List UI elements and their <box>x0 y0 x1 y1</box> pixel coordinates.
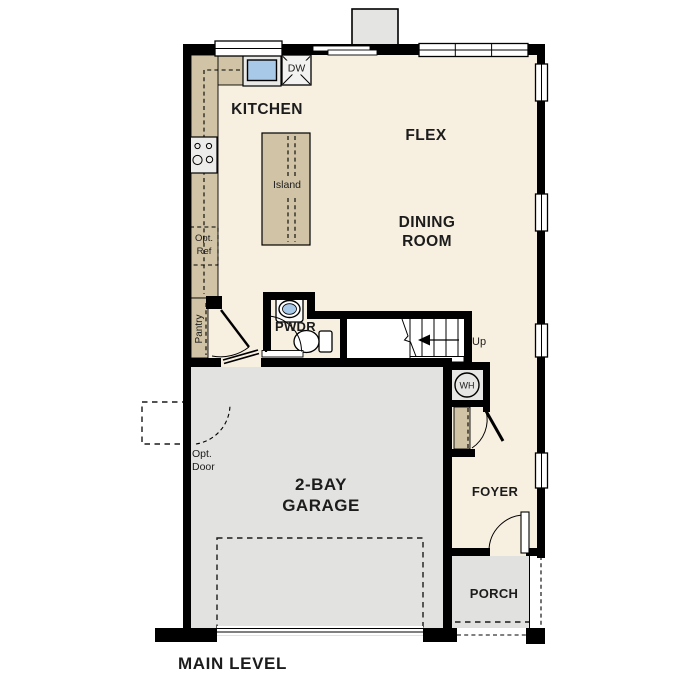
vanity-sink-bowl <box>283 304 297 315</box>
porch-label: PORCH <box>470 586 518 601</box>
closet-shelf <box>454 407 470 449</box>
wall-porch-post <box>526 628 545 644</box>
porch-edge-strip <box>529 556 537 628</box>
water-heater-label: WH <box>460 381 475 391</box>
wall-foyer-bottom-left <box>443 548 490 556</box>
wall-closet-bottom <box>443 449 475 457</box>
wall-garage-bottom-left <box>155 628 217 642</box>
up-label: Up <box>472 336 486 348</box>
wall-pantry-stub <box>206 296 222 309</box>
island-label: Island <box>273 179 301 191</box>
pwdr-label: PWDR <box>275 319 316 334</box>
front-door-leaf <box>521 512 529 553</box>
opt-ref-label-line1: Opt. <box>195 233 213 244</box>
pwdr-door-sill <box>262 351 303 358</box>
flex-label: FLEX <box>405 127 446 144</box>
dining-room-label-line1: DINING <box>399 214 456 231</box>
wall-pwdr-stair <box>340 319 347 362</box>
pantry-label: Pantry <box>194 315 205 344</box>
wall-wh-right <box>483 362 490 412</box>
kitchen-counter-left <box>191 55 218 298</box>
dishwasher-label: DW <box>288 63 306 75</box>
chimney-bumpout <box>352 9 398 48</box>
dining-room-label-line2: ROOM <box>402 233 452 250</box>
garage-door-opening <box>217 626 423 635</box>
sink-icon <box>248 60 277 81</box>
foyer-label: FOYER <box>472 484 519 499</box>
kitchen-label: KITCHEN <box>231 101 303 118</box>
range-icon <box>189 137 217 173</box>
floor-plan-page: KITCHEN FLEX DINING ROOM DW Island Opt. … <box>0 0 687 687</box>
main-level-title: MAIN LEVEL <box>178 654 287 673</box>
opt-door-label-line2: Door <box>192 461 215 473</box>
wall-stair-top <box>307 311 472 319</box>
wall-garage-foyer <box>443 358 452 636</box>
wall-wh-closet-divider <box>452 400 483 407</box>
floor-plan-drawing: KITCHEN FLEX DINING ROOM DW Island Opt. … <box>0 0 687 687</box>
toilet-tank-icon <box>319 331 332 352</box>
wall-left <box>183 44 191 632</box>
opt-door-label-line1: Opt. <box>192 448 212 460</box>
opt-ref-label-line2: Ref <box>197 246 212 257</box>
wall-pwdr-right <box>307 292 315 319</box>
opt-door-panel-dashed <box>142 402 185 444</box>
wall-garage-bottom-right <box>423 628 457 642</box>
wall-wh-top <box>443 362 490 370</box>
garage-label-line2: GARAGE <box>282 496 360 515</box>
garage-label-line1: 2-BAY <box>295 475 347 494</box>
window-sill <box>328 50 377 55</box>
wall-stair-right <box>464 311 472 362</box>
